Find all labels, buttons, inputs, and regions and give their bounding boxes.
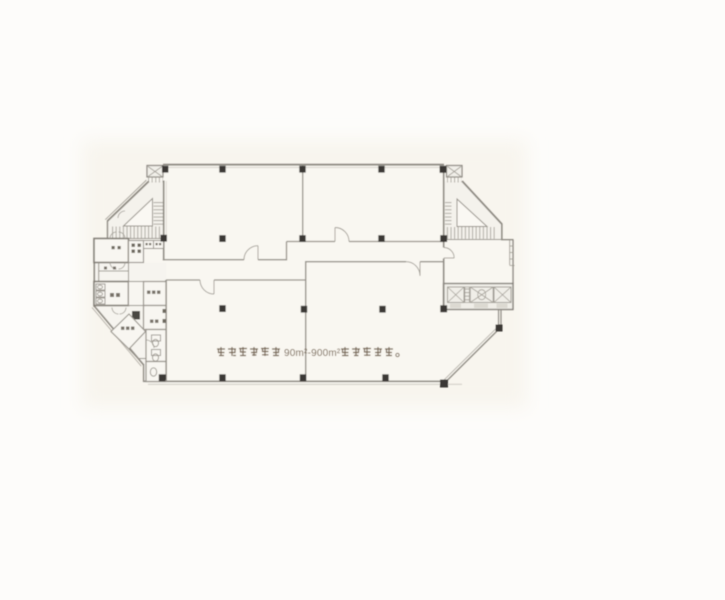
svg-text:90m²-900m²: 90m²-900m² — [284, 348, 341, 359]
